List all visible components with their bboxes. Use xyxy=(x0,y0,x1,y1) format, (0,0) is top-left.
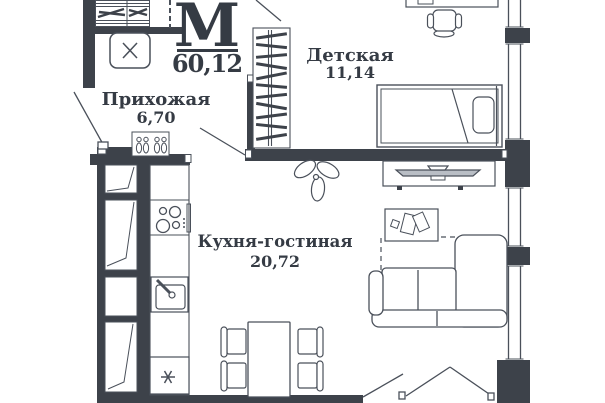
entrance-door-leaf xyxy=(98,142,108,149)
washing-machine-icon xyxy=(110,33,150,68)
tv-icon xyxy=(396,170,480,176)
refrigerator-icon xyxy=(150,357,189,394)
plan-logo-letter: М xyxy=(174,0,240,56)
chair-back xyxy=(317,361,323,391)
corner-sofa-icon xyxy=(369,235,507,327)
entrance-door-swing xyxy=(74,92,104,146)
room-area-hallway: 6,70 xyxy=(137,110,176,126)
plant-icon xyxy=(291,157,341,202)
chair-seat xyxy=(227,329,246,354)
shoe-rack-icon xyxy=(132,132,169,156)
dining-table-icon xyxy=(248,322,290,397)
floor-plan-drawing xyxy=(0,0,605,403)
chair-seat xyxy=(298,363,317,388)
balcony-door-leaf-left xyxy=(399,392,405,399)
window-pier-1 xyxy=(505,28,530,43)
room-label-hallway: Прихожая xyxy=(102,91,211,109)
room-label-kitchen-living: Кухня-гостиная xyxy=(197,234,352,251)
hallway-kitchen-door-swing xyxy=(200,128,245,155)
children-room-door-swing xyxy=(256,0,281,21)
zoning-dashed-lines xyxy=(381,237,456,270)
chair-back xyxy=(221,327,227,357)
floor-plan: М 60,12 Прихожая 6,70 Детская 11,14 Кухн… xyxy=(0,0,605,403)
coffee-table-icon xyxy=(385,209,438,241)
room-area-kitchen-living: 20,72 xyxy=(250,254,300,270)
balcony-door-swing-left xyxy=(363,374,403,397)
bed-icon xyxy=(377,85,502,147)
wall-middle xyxy=(245,149,513,161)
wall-bottom xyxy=(97,395,363,403)
window-pier-3 xyxy=(505,247,530,265)
wardrobe-icon xyxy=(253,28,290,148)
balcony-door-swing-mid xyxy=(406,367,450,396)
chair-back xyxy=(221,361,227,391)
desk-icon xyxy=(406,0,498,7)
balcony-door-swing-right xyxy=(450,367,492,396)
chair-back xyxy=(317,327,323,357)
total-area-label: 60,12 xyxy=(172,52,242,76)
chair-seat xyxy=(227,363,246,388)
window-pier-2 xyxy=(505,140,530,187)
sink-icon xyxy=(151,277,188,312)
wall-bottom-right-block xyxy=(497,360,530,403)
tv-stand-icon xyxy=(383,161,495,190)
office-chair-icon xyxy=(428,10,462,37)
hanger-closet-icon xyxy=(96,1,150,27)
wall-top-left xyxy=(83,0,95,88)
dining-set-icon xyxy=(221,322,323,397)
balcony-door-leaf-right xyxy=(488,393,494,400)
room-area-children: 11,14 xyxy=(325,65,375,81)
chair-seat xyxy=(298,329,317,354)
